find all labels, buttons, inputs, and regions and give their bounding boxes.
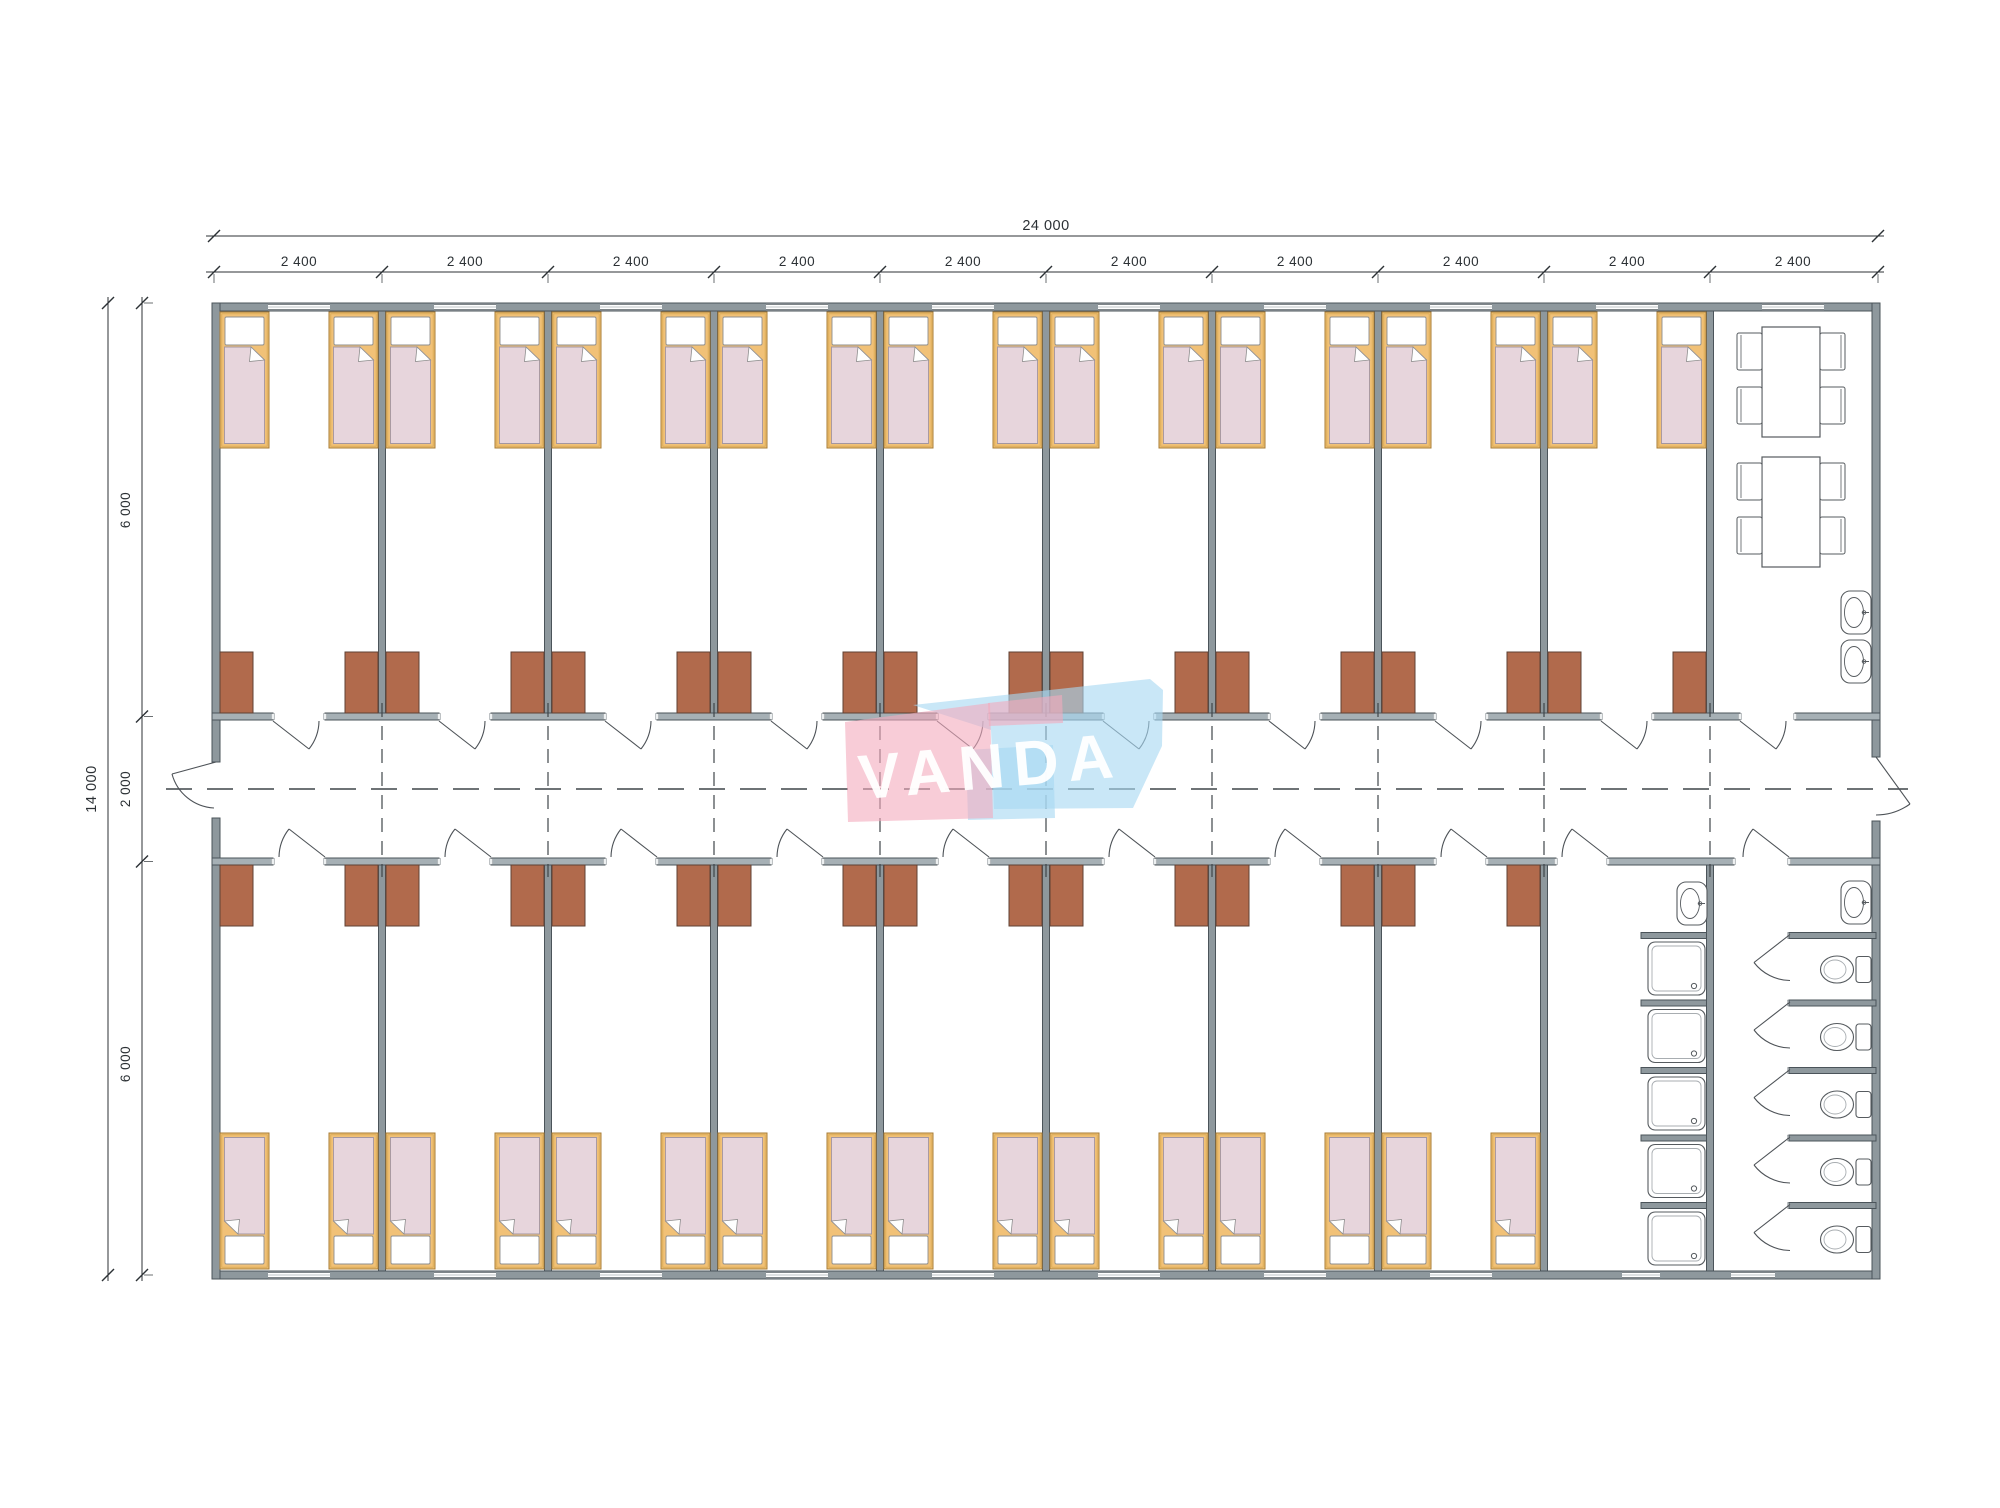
door-swing: [1109, 829, 1119, 857]
bed: [661, 312, 710, 448]
shower-room: [1641, 933, 1707, 1266]
door-jamb: [1153, 859, 1156, 865]
wardrobe: [718, 865, 751, 926]
wardrobe: [843, 652, 876, 713]
corridor-wall: [1795, 713, 1880, 720]
bed: [329, 1133, 378, 1269]
door-jamb: [1319, 714, 1322, 720]
partition-wall: [1043, 311, 1050, 720]
door-jamb: [437, 859, 440, 865]
door-jamb: [1267, 714, 1270, 720]
corridor-wall: [212, 858, 273, 865]
wardrobe: [386, 652, 419, 713]
bed: [1325, 312, 1374, 448]
window: [1264, 304, 1326, 310]
corridor-wall: [823, 858, 937, 865]
wall: [1872, 303, 1880, 757]
door-swing: [953, 829, 989, 857]
chair: [1820, 387, 1845, 424]
partition-wall: [545, 858, 552, 1271]
wardrobe: [1673, 652, 1706, 713]
door-swing: [172, 774, 214, 808]
door-swing: [1601, 721, 1637, 749]
wardrobe: [843, 865, 876, 926]
wc-partition: [1789, 933, 1876, 939]
door-swing: [445, 829, 455, 857]
bed: [993, 312, 1042, 448]
door-swing: [787, 829, 823, 857]
wardrobe: [1382, 652, 1415, 713]
window: [766, 1272, 828, 1278]
wc-partition: [1789, 1068, 1876, 1074]
door-jamb: [323, 859, 326, 865]
shower-tray: [1648, 1212, 1705, 1265]
partition-wall: [1707, 311, 1714, 720]
bed: [1216, 312, 1265, 448]
wc-partition: [1789, 1000, 1876, 1006]
dimension-label: 6 000: [118, 492, 133, 528]
wardrobe: [552, 652, 585, 713]
door-jamb: [1433, 714, 1436, 720]
door-swing: [1471, 721, 1481, 749]
door-jamb: [821, 714, 824, 720]
window: [1430, 1272, 1492, 1278]
door-swing: [1269, 721, 1305, 749]
dimension-label: 2 400: [1609, 254, 1645, 269]
dimension-label: 6 000: [118, 1046, 133, 1082]
wardrobe: [1050, 865, 1083, 926]
door-swing: [1572, 829, 1608, 857]
door-jamb: [655, 714, 658, 720]
bed: [1159, 312, 1208, 448]
door-swing: [621, 829, 657, 857]
door-swing: [641, 721, 651, 749]
chair: [1820, 517, 1845, 554]
wardrobe: [1341, 865, 1374, 926]
door-jamb: [1554, 859, 1557, 865]
bed: [1159, 1133, 1208, 1269]
wall: [212, 303, 220, 762]
door-jamb: [489, 714, 492, 720]
partition-wall: [1541, 858, 1548, 1271]
partition-wall: [711, 858, 718, 1271]
bed: [1050, 312, 1099, 448]
door-swing: [273, 721, 309, 749]
partition-wall: [545, 311, 552, 720]
partition-wall: [1209, 311, 1216, 720]
window: [1622, 1272, 1660, 1278]
bed: [993, 1133, 1042, 1269]
floor-plan-drawing: 24 0002 4002 4002 4002 4002 4002 4002 40…: [0, 0, 2000, 1508]
door-swing: [943, 829, 953, 857]
dimension-label: 2 400: [1111, 254, 1147, 269]
door-swing: [1637, 721, 1647, 749]
floor-plan-canvas: 24 0002 4002 4002 4002 4002 4002 4002 40…: [0, 0, 2000, 1508]
chair: [1820, 463, 1845, 500]
wardrobe: [220, 652, 253, 713]
door-swing: [1451, 829, 1487, 857]
bed: [1382, 1133, 1431, 1269]
toilet: [1821, 1024, 1872, 1051]
window: [1762, 304, 1824, 310]
door-swing: [1285, 829, 1321, 857]
corridor-wall: [989, 858, 1103, 865]
bed: [1491, 1133, 1540, 1269]
partition-wall: [877, 311, 884, 720]
door-jamb: [1101, 859, 1104, 865]
dimension-label: 2 400: [945, 254, 981, 269]
bed: [827, 1133, 876, 1269]
wc-room: [1754, 933, 1876, 1254]
door-swing: [1743, 829, 1753, 857]
bed: [718, 1133, 767, 1269]
door-jamb: [489, 859, 492, 865]
wardrobe: [1216, 865, 1249, 926]
shower-tray: [1648, 942, 1705, 995]
window: [268, 1272, 330, 1278]
partition-wall: [1375, 858, 1382, 1271]
door-swing: [1754, 1098, 1790, 1116]
dimension-label: 2 000: [118, 771, 133, 807]
shower-tray: [1648, 1010, 1705, 1063]
bed: [1548, 312, 1597, 448]
bed: [552, 312, 601, 448]
door-jamb: [603, 859, 606, 865]
bed: [1216, 1133, 1265, 1269]
wardrobe: [1507, 865, 1540, 926]
toilet: [1821, 1091, 1872, 1118]
bed: [1491, 312, 1540, 448]
wardrobe: [677, 865, 710, 926]
door-jamb: [1732, 859, 1735, 865]
bed: [1325, 1133, 1374, 1269]
door-swing: [1754, 1137, 1790, 1165]
window: [600, 304, 662, 310]
dimension-label: 2 400: [613, 254, 649, 269]
wardrobe: [386, 865, 419, 926]
bed: [1657, 312, 1706, 448]
shower-tray: [1648, 1145, 1705, 1198]
window: [1098, 304, 1160, 310]
wardrobe: [884, 865, 917, 926]
corridor-wall: [325, 858, 439, 865]
toilet: [1821, 1159, 1872, 1186]
shower-partition: [1641, 1135, 1707, 1141]
bed: [495, 312, 544, 448]
door-swing: [172, 762, 216, 774]
window: [600, 1272, 662, 1278]
partition-wall: [1541, 311, 1548, 720]
door-jamb: [1793, 714, 1796, 720]
partition-wall: [1209, 858, 1216, 1271]
corridor-wall: [1653, 713, 1740, 720]
door-swing: [1441, 829, 1451, 857]
door-jamb: [1433, 859, 1436, 865]
wardrobe: [1548, 652, 1581, 713]
door-swing: [771, 721, 807, 749]
chair: [1820, 333, 1845, 370]
door-swing: [611, 829, 621, 857]
corridor-wall: [1321, 858, 1435, 865]
door-swing: [475, 721, 485, 749]
wardrobe: [1175, 652, 1208, 713]
door-swing: [1435, 721, 1471, 749]
bed: [718, 312, 767, 448]
door-swing: [1876, 757, 1910, 804]
shower-partition: [1641, 1000, 1707, 1006]
chair: [1737, 517, 1762, 554]
dimension-label: 2 400: [1775, 254, 1811, 269]
bed: [220, 312, 269, 448]
door-swing: [1754, 1233, 1790, 1251]
partition-wall: [711, 311, 718, 720]
door-swing: [777, 829, 787, 857]
window: [1430, 304, 1492, 310]
partition-wall: [1707, 858, 1714, 1271]
wardrobe: [1341, 652, 1374, 713]
door-swing: [1275, 829, 1285, 857]
dining-table: [1762, 327, 1820, 437]
washbasin: [1677, 882, 1707, 925]
bed: [884, 1133, 933, 1269]
partition-wall: [877, 858, 884, 1271]
door-jamb: [1319, 859, 1322, 865]
door-jamb: [1485, 859, 1488, 865]
wardrobe: [345, 652, 378, 713]
door-swing: [1754, 1165, 1790, 1183]
door-jamb: [1599, 714, 1602, 720]
window: [766, 304, 828, 310]
door-jamb: [271, 714, 274, 720]
door-swing: [1562, 829, 1572, 857]
door-swing: [1754, 1070, 1790, 1098]
chair: [1737, 463, 1762, 500]
window: [932, 304, 994, 310]
window: [932, 1272, 994, 1278]
door-swing: [807, 721, 817, 749]
wardrobe: [1216, 652, 1249, 713]
door-jamb: [935, 859, 938, 865]
door-jamb: [769, 859, 772, 865]
door-jamb: [1787, 859, 1790, 865]
corridor-wall: [1789, 858, 1880, 865]
wardrobe: [511, 865, 544, 926]
window: [1731, 1272, 1775, 1278]
door-jamb: [655, 859, 658, 865]
wardrobe: [718, 652, 751, 713]
door-swing: [1876, 804, 1910, 815]
door-jamb: [1651, 714, 1654, 720]
door-jamb: [1738, 714, 1741, 720]
wc-partition: [1789, 1203, 1876, 1209]
wardrobe: [1175, 865, 1208, 926]
bed: [329, 312, 378, 448]
door-swing: [605, 721, 641, 749]
dimension-label: 14 000: [84, 765, 100, 812]
washbasin: [1841, 881, 1871, 924]
bed: [495, 1133, 544, 1269]
bed: [661, 1133, 710, 1269]
door-jamb: [323, 714, 326, 720]
door-jamb: [437, 714, 440, 720]
bed: [827, 312, 876, 448]
door-swing: [309, 721, 319, 749]
corridor-wall: [1608, 858, 1734, 865]
window: [434, 304, 496, 310]
partition-wall: [379, 858, 386, 1271]
door-jamb: [1485, 714, 1488, 720]
door-swing: [1776, 721, 1786, 749]
wall: [1872, 821, 1880, 1279]
door-jamb: [987, 859, 990, 865]
wardrobe: [220, 865, 253, 926]
door-swing: [289, 829, 325, 857]
wardrobe: [1507, 652, 1540, 713]
corridor-wall: [1487, 858, 1556, 865]
door-jamb: [821, 859, 824, 865]
wardrobe: [677, 652, 710, 713]
door-swing: [279, 829, 289, 857]
wardrobe: [1009, 865, 1042, 926]
door-jamb: [769, 714, 772, 720]
corridor-wall: [212, 713, 273, 720]
chair: [1737, 387, 1762, 424]
dimension-label: 2 400: [447, 254, 483, 269]
bed: [1382, 312, 1431, 448]
door-swing: [1740, 721, 1776, 749]
partition-wall: [379, 311, 386, 720]
door-swing: [1754, 1030, 1790, 1048]
bed: [1050, 1133, 1099, 1269]
window: [1098, 1272, 1160, 1278]
wardrobe: [1382, 865, 1415, 926]
partition-wall: [1375, 311, 1382, 720]
bed: [552, 1133, 601, 1269]
bed: [386, 312, 435, 448]
dining-table: [1762, 457, 1820, 567]
door-swing: [1305, 721, 1315, 749]
bed: [884, 312, 933, 448]
wc-partition: [1789, 1135, 1876, 1141]
dimension-label: 2 400: [281, 254, 317, 269]
wardrobe: [884, 652, 917, 713]
shower-tray: [1648, 1077, 1705, 1130]
toilet: [1821, 1226, 1872, 1253]
door-swing: [1119, 829, 1155, 857]
wardrobe: [345, 865, 378, 926]
window: [434, 1272, 496, 1278]
window: [1264, 1272, 1326, 1278]
washbasin: [1841, 640, 1871, 683]
dimension-label: 24 000: [1022, 218, 1069, 234]
bed: [386, 1133, 435, 1269]
door-jamb: [1267, 859, 1270, 865]
toilet: [1821, 956, 1872, 983]
door-swing: [439, 721, 475, 749]
dining-area: [1737, 327, 1845, 567]
shower-partition: [1641, 1203, 1707, 1209]
wardrobe: [511, 652, 544, 713]
chair: [1737, 333, 1762, 370]
washbasin: [1841, 591, 1871, 634]
corridor-wall: [491, 858, 605, 865]
dimension-label: 2 400: [779, 254, 815, 269]
dimension-label: 2 400: [1277, 254, 1313, 269]
door-swing: [455, 829, 491, 857]
door-swing: [1754, 963, 1790, 981]
window: [1596, 304, 1658, 310]
shower-partition: [1641, 933, 1707, 939]
wardrobe: [552, 865, 585, 926]
door-jamb: [1606, 859, 1609, 865]
door-swing: [1754, 935, 1790, 963]
wall: [212, 818, 220, 1279]
corridor-wall: [657, 858, 771, 865]
shower-partition: [1641, 1068, 1707, 1074]
door-swing: [1754, 1002, 1790, 1030]
window: [268, 304, 330, 310]
partition-wall: [1043, 858, 1050, 1271]
bed: [220, 1133, 269, 1269]
corridor-wall: [1155, 858, 1269, 865]
door-swing: [1754, 1205, 1790, 1233]
door-jamb: [271, 859, 274, 865]
dimension-label: 2 400: [1443, 254, 1479, 269]
door-swing: [1753, 829, 1789, 857]
door-jamb: [603, 714, 606, 720]
